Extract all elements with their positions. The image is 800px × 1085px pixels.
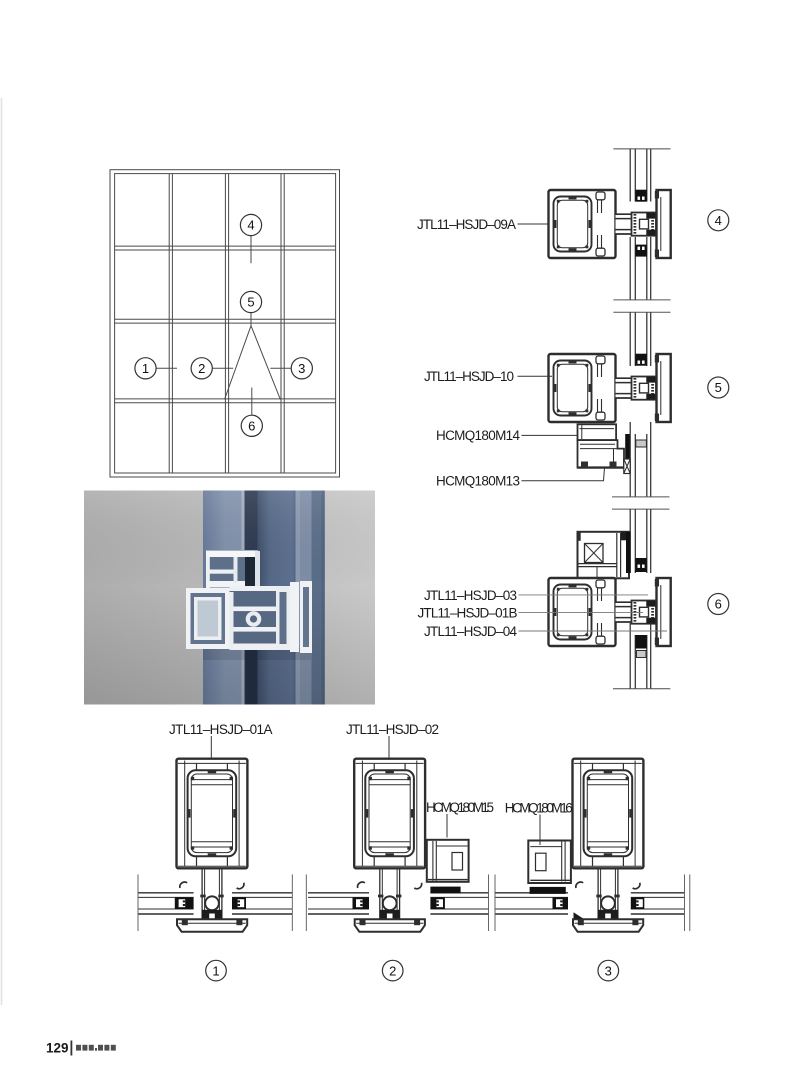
svg-text:1: 1 bbox=[142, 361, 149, 376]
svg-text:3: 3 bbox=[298, 361, 305, 376]
svg-text:6: 6 bbox=[248, 418, 255, 433]
svg-text:2: 2 bbox=[389, 963, 396, 978]
svg-text:HCMQ180M15: HCMQ180M15 bbox=[426, 800, 494, 815]
svg-text:JTL11–HSJD–09A: JTL11–HSJD–09A bbox=[417, 217, 516, 232]
svg-text:JTL11–HSJD–03: JTL11–HSJD–03 bbox=[424, 588, 517, 603]
svg-text:4: 4 bbox=[715, 213, 722, 228]
svg-text:4: 4 bbox=[247, 218, 254, 233]
svg-text:5: 5 bbox=[247, 295, 254, 310]
svg-text:JTL11–HSJD–01A: JTL11–HSJD–01A bbox=[169, 722, 273, 737]
svg-text:3: 3 bbox=[605, 963, 612, 978]
svg-text:HCMQ180M16: HCMQ180M16 bbox=[505, 801, 573, 816]
svg-text:JTL11–HSJD–04: JTL11–HSJD–04 bbox=[424, 624, 517, 639]
svg-text:5: 5 bbox=[715, 380, 722, 395]
svg-text:JTL11–HSJD–02: JTL11–HSJD–02 bbox=[346, 722, 439, 737]
svg-text:JTL11–HSJD–01B: JTL11–HSJD–01B bbox=[418, 605, 518, 620]
svg-text:1: 1 bbox=[212, 963, 219, 978]
svg-text:HCMQ180M13: HCMQ180M13 bbox=[436, 474, 520, 489]
svg-text:129: 129 bbox=[46, 1041, 69, 1056]
svg-text:HCMQ180M14: HCMQ180M14 bbox=[436, 428, 520, 443]
svg-text:6: 6 bbox=[715, 597, 722, 612]
svg-text:2: 2 bbox=[198, 361, 205, 376]
svg-text:JTL11–HSJD–10: JTL11–HSJD–10 bbox=[424, 369, 514, 384]
